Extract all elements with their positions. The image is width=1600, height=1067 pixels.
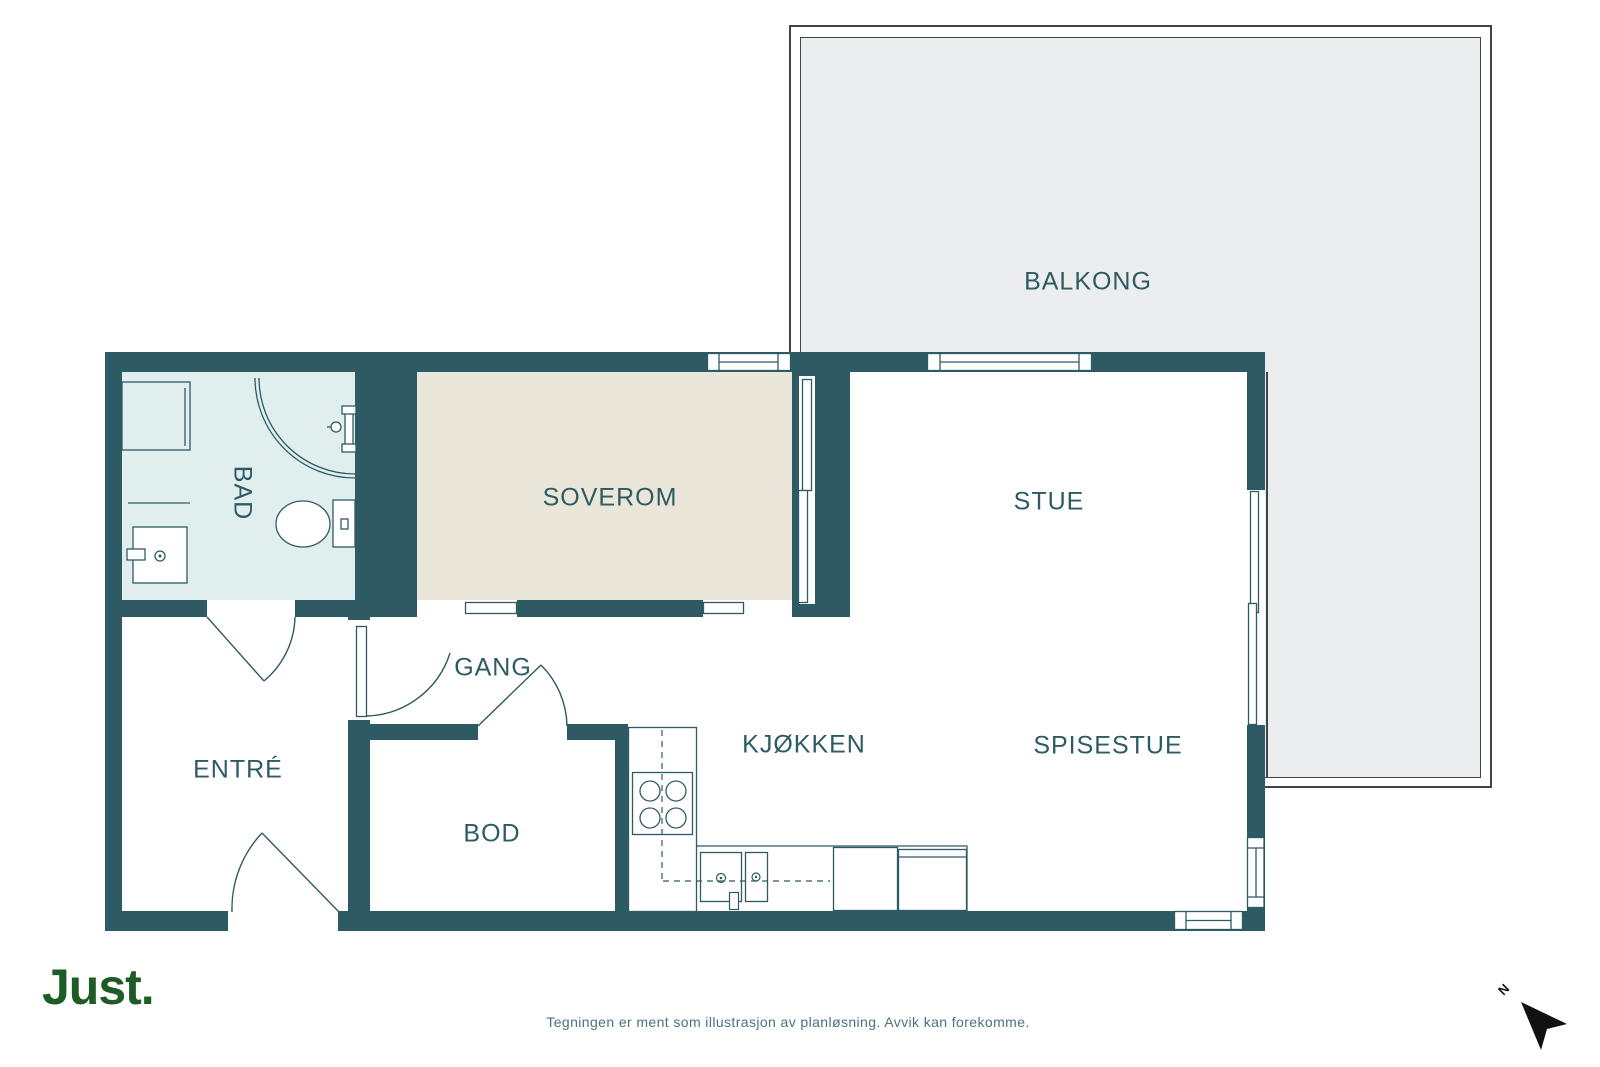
- wall-shaft: [355, 352, 417, 617]
- entry-door-opening: [228, 911, 338, 931]
- room-label-bod: BOD: [463, 820, 520, 849]
- room-label-bad: BAD: [228, 466, 257, 520]
- wall-soverom-bottom: [517, 600, 703, 617]
- room-label-stue: STUE: [1014, 488, 1085, 517]
- wall-top: [105, 352, 1265, 372]
- gang-door-opening: [348, 620, 370, 720]
- disclaimer-text: Tegningen er ment som illustrasjon av pl…: [0, 1014, 1576, 1030]
- wall-bod-right: [615, 724, 628, 931]
- soverom-sliding-opening: [799, 376, 815, 604]
- room-label-soverom: SOVEROM: [543, 484, 678, 513]
- balcony-door-opening: [1247, 490, 1265, 725]
- room-label-spisestue: SPISESTUE: [1033, 732, 1182, 761]
- wall-left: [105, 352, 122, 931]
- room-label-gang: GANG: [454, 654, 532, 683]
- room-label-balkong: BALKONG: [1024, 268, 1152, 297]
- room-label-entre: ENTRÉ: [193, 756, 283, 785]
- bod-door-opening: [478, 724, 567, 740]
- floorplan: BALKONG SOVEROM STUE SPISESTUE KJØKKEN G…: [0, 0, 1600, 1067]
- balcony-inner-edge: [1266, 372, 1268, 777]
- north-label: N: [1495, 981, 1512, 998]
- just-logo: Just.: [42, 958, 154, 1016]
- bath-door-opening: [207, 600, 295, 617]
- room-label-kjokken: KJØKKEN: [742, 731, 866, 760]
